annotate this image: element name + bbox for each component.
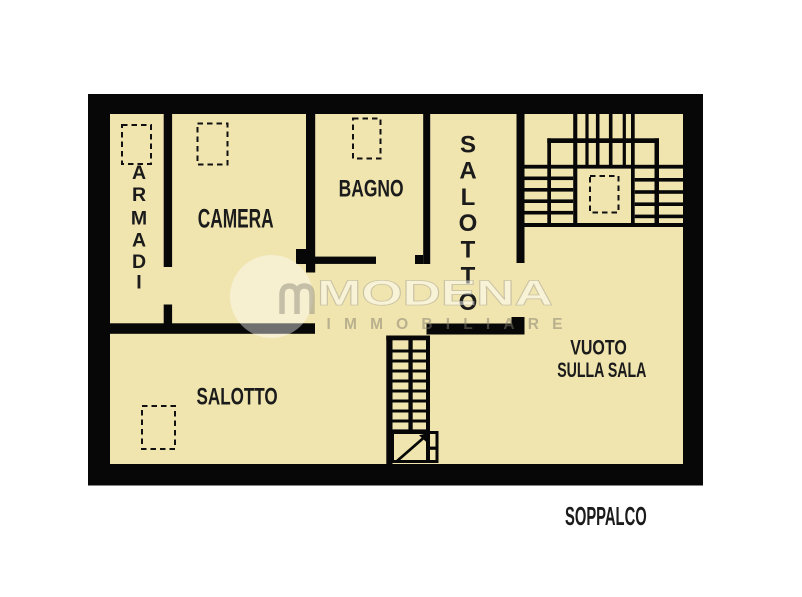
- svg-text:SOPPALCO: SOPPALCO: [565, 503, 647, 531]
- svg-text:A: A: [132, 230, 146, 252]
- svg-text:D: D: [132, 251, 146, 273]
- svg-text:VUOTO: VUOTO: [570, 337, 627, 360]
- svg-text:O: O: [459, 210, 478, 237]
- svg-text:S: S: [460, 131, 476, 158]
- svg-text:SULLA SALA: SULLA SALA: [557, 359, 646, 382]
- svg-text:I: I: [136, 272, 141, 294]
- svg-text:BAGNO: BAGNO: [339, 175, 404, 202]
- svg-text:L: L: [461, 184, 476, 211]
- svg-text:A: A: [132, 162, 146, 184]
- svg-text:CAMERA: CAMERA: [198, 203, 274, 233]
- svg-text:A: A: [459, 158, 476, 185]
- svg-text:M: M: [131, 208, 147, 230]
- svg-text:SALOTTO: SALOTTO: [197, 384, 278, 411]
- svg-text:T: T: [461, 236, 476, 263]
- svg-text:R: R: [132, 184, 146, 206]
- svg-text:MODENA: MODENA: [317, 274, 553, 313]
